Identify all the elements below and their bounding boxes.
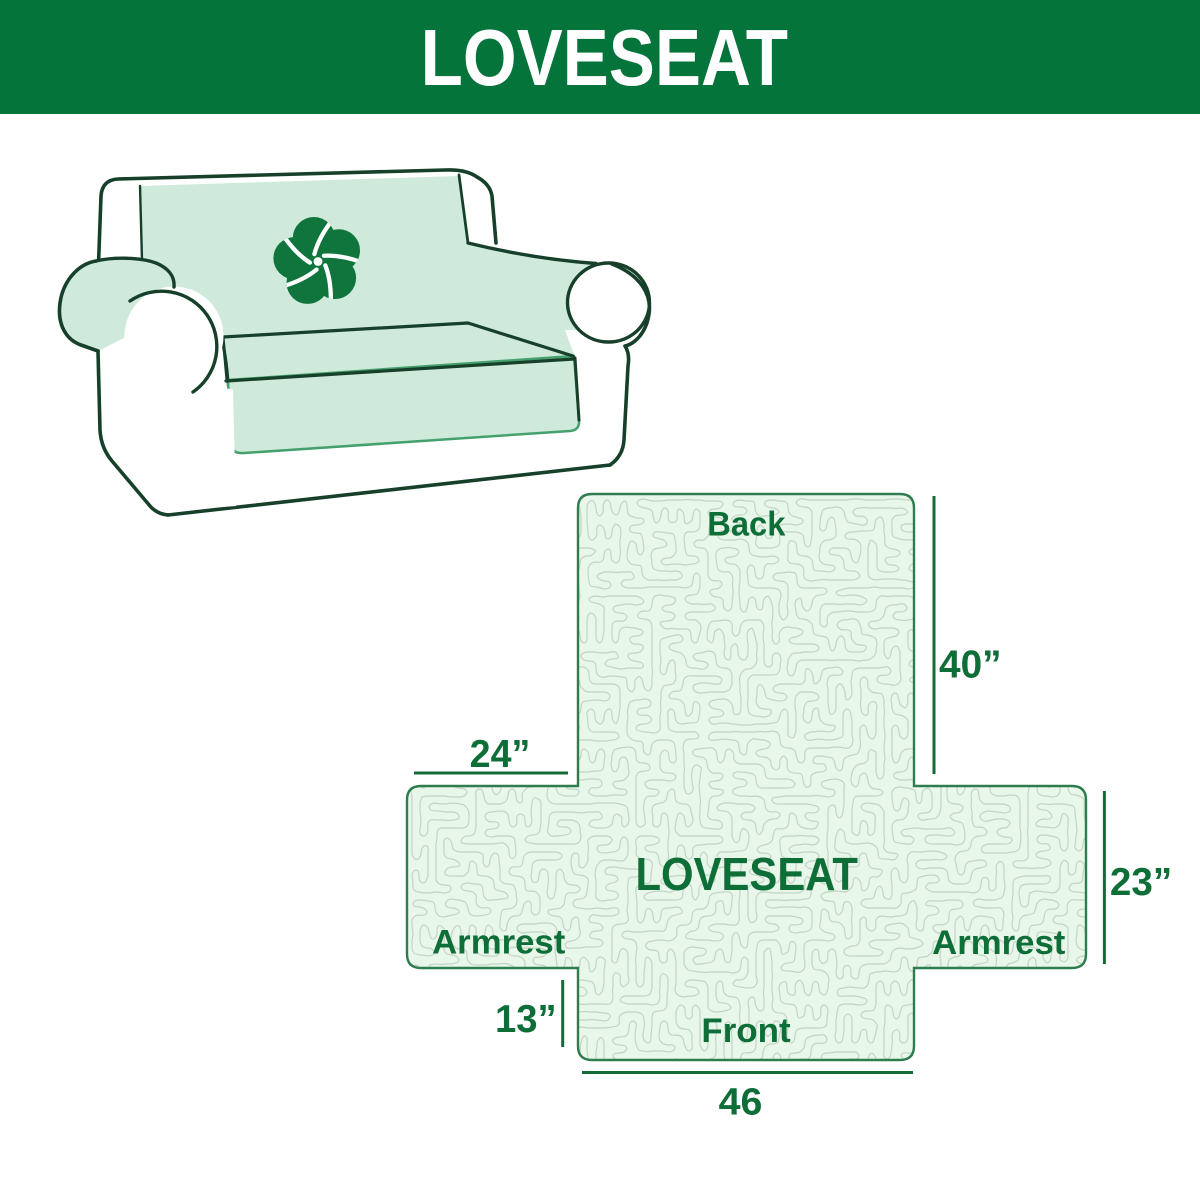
svg-text:23”: 23” bbox=[1110, 861, 1172, 904]
svg-text:LOVESEAT: LOVESEAT bbox=[421, 12, 788, 102]
svg-text:46: 46 bbox=[719, 1081, 763, 1123]
svg-text:LOVESEAT: LOVESEAT bbox=[635, 849, 858, 900]
svg-text:Back: Back bbox=[707, 506, 786, 544]
svg-text:13”: 13” bbox=[495, 998, 557, 1041]
svg-text:40”: 40” bbox=[939, 643, 1002, 686]
svg-text:Front: Front bbox=[701, 1012, 791, 1049]
svg-text:24”: 24” bbox=[470, 732, 531, 776]
svg-text:Armrest: Armrest bbox=[432, 924, 566, 962]
svg-text:Armrest: Armrest bbox=[932, 924, 1066, 962]
